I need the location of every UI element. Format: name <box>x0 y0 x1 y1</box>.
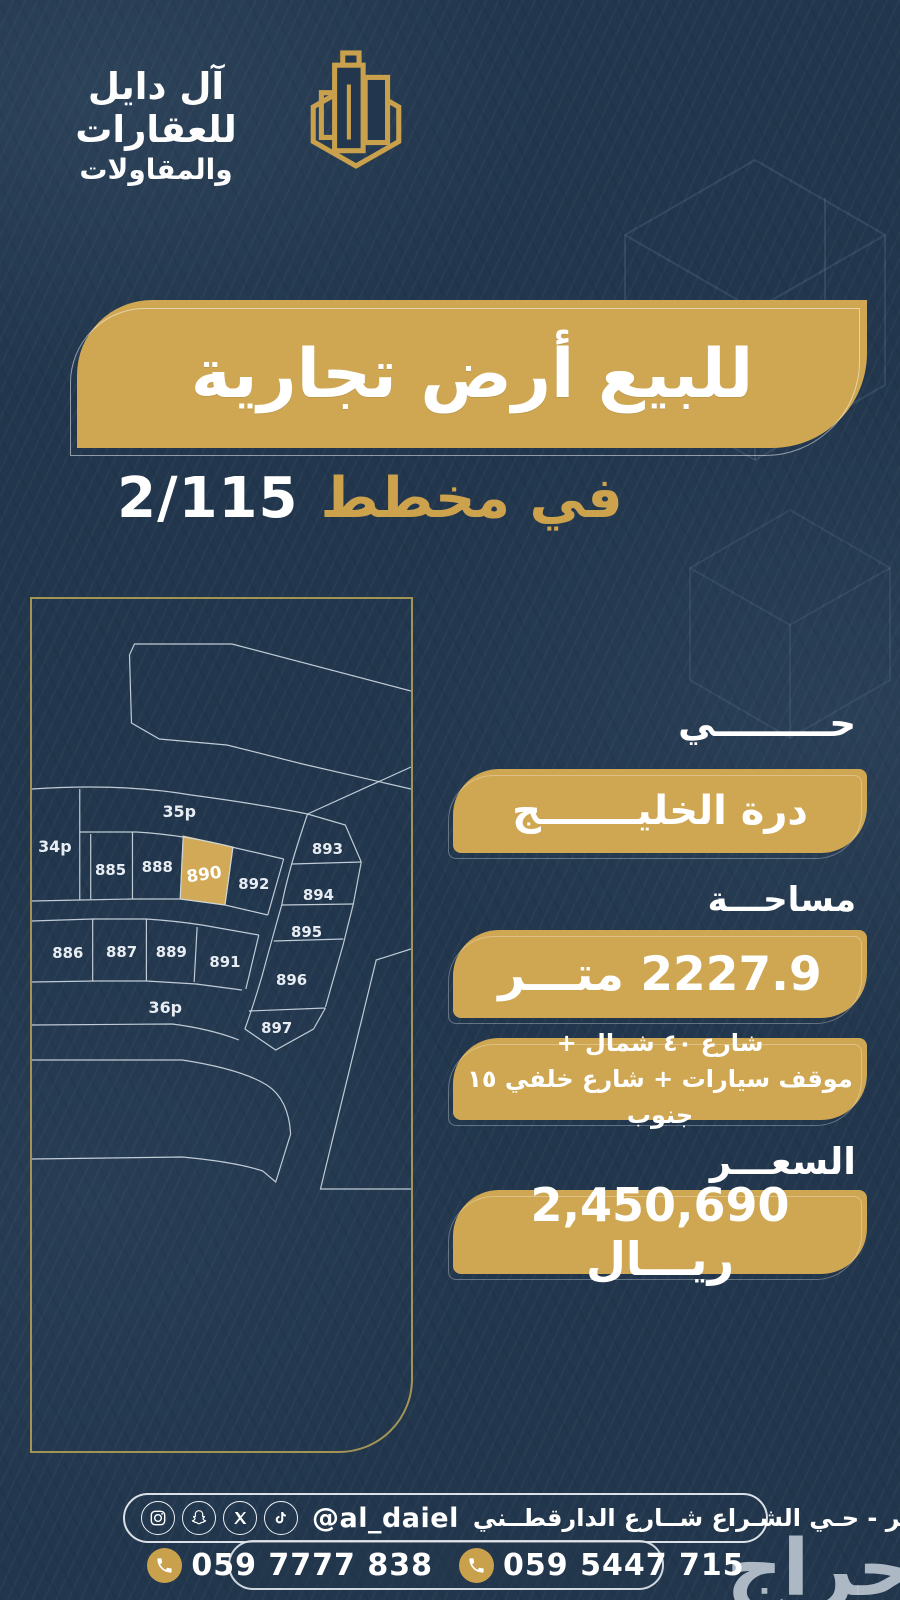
plot-label-887: 887 <box>106 943 137 961</box>
hero-subtitle-label: في مخطط <box>320 466 622 531</box>
area-label: مساحـــة <box>436 880 856 920</box>
plot-label-891: 891 <box>209 953 240 971</box>
office-address: الخـبر - حـي الشـراع شــارع الدارقطــني <box>473 1504 900 1532</box>
hero-banner: للبيع أرض تجارية <box>77 300 867 448</box>
brand-name-line2: والمقاولات <box>18 153 294 186</box>
plot-label-895: 895 <box>291 923 322 941</box>
district-value-pill: درة الخليـــــــج <box>453 769 867 853</box>
plot-label-892: 892 <box>238 875 269 893</box>
x-twitter-icon <box>223 1501 257 1535</box>
plot-map: 35p 34p 885 888 890 892 893 894 886 887 … <box>32 599 411 1451</box>
district-value: درة الخليـــــــج <box>512 788 808 834</box>
snapchat-icon <box>182 1501 216 1535</box>
instagram-icon <box>141 1501 175 1535</box>
contact-address-bar: @al_daiel الخـبر - حـي الشـراع شــارع ال… <box>123 1493 768 1543</box>
phone-number-1: 059 7777 838 <box>191 1548 433 1583</box>
street-frontage-line1: شارع ٤٠ شمال + <box>557 1025 764 1061</box>
plot-label-885: 885 <box>95 861 126 879</box>
social-icons <box>141 1501 298 1535</box>
area-value-pill: 2227.9 متـــر <box>453 930 867 1018</box>
hero-title: للبيع أرض تجارية <box>191 335 754 414</box>
plot-label-896: 896 <box>276 971 307 989</box>
district-label: حـــــــــي <box>436 702 856 745</box>
poster-canvas: آل دايل للعقارات والمقاولات للبيع أرض تج… <box>0 0 900 1600</box>
map-parcel-lines <box>32 644 411 1189</box>
brand-logo-building-icon <box>300 48 412 174</box>
street-label-34p: 34p <box>38 837 72 856</box>
street-frontage-pill: شارع ٤٠ شمال + موقف سيارات + شارع خلفي ١… <box>453 1038 867 1120</box>
brand-name-line1: آل دايل للعقارات <box>18 66 294 151</box>
hero-subtitle: في مخطط 2/115 <box>85 452 655 544</box>
street-label-36p: 36p <box>149 998 183 1017</box>
plot-label-893: 893 <box>312 840 343 858</box>
street-frontage-line2: موقف سيارات + شارع خلفي ١٥ جنوب <box>453 1061 867 1133</box>
phone-entry-1: 059 7777 838 <box>147 1548 433 1583</box>
price-value-pill: 2,450,690 ريـــال <box>453 1190 867 1274</box>
phone-icon <box>147 1548 182 1583</box>
area-value: 2227.9 متـــر <box>498 947 821 1002</box>
tiktok-icon <box>264 1501 298 1535</box>
phone-icon <box>459 1548 494 1583</box>
price-value: 2,450,690 ريـــال <box>453 1178 867 1286</box>
street-label-35p: 35p <box>162 802 196 821</box>
plot-label-894: 894 <box>303 886 334 904</box>
social-handle: @al_daiel <box>312 1503 459 1534</box>
phone-number-2: 059 5447 715 <box>503 1548 745 1583</box>
plot-label-888: 888 <box>142 858 173 876</box>
plot-label-886: 886 <box>52 944 83 962</box>
plot-label-889: 889 <box>156 943 187 961</box>
phone-numbers-bar: 059 7777 838 059 5447 715 <box>228 1540 664 1590</box>
plot-map-frame: 35p 34p 885 888 890 892 893 894 886 887 … <box>30 597 413 1453</box>
brand-name: آل دايل للعقارات والمقاولات <box>18 66 294 186</box>
phone-entry-2: 059 5447 715 <box>459 1548 745 1583</box>
price-label: السعـــر <box>436 1140 856 1183</box>
plot-label-897: 897 <box>261 1019 292 1037</box>
hero-subtitle-plan-number: 2/115 <box>117 466 298 531</box>
